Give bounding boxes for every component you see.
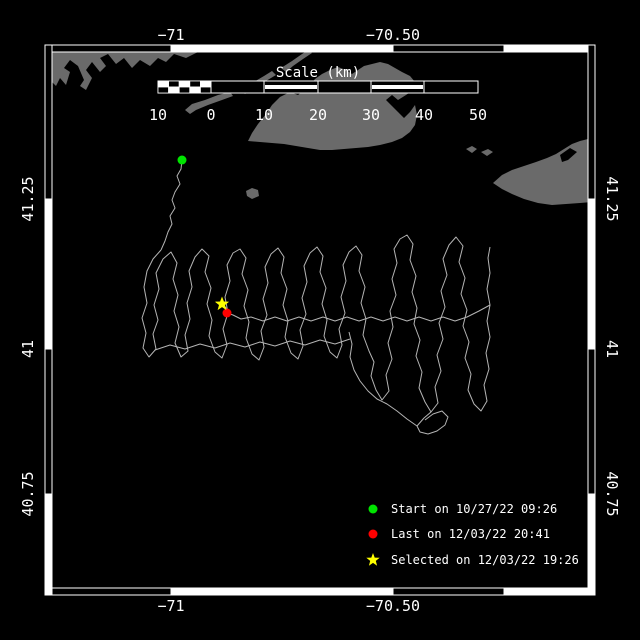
axis-label-right: 41: [603, 340, 621, 358]
scalebar-checker-cell: [179, 81, 190, 87]
axis-label-right: 40.75: [603, 471, 621, 516]
scalebar-checker-cell: [190, 87, 201, 93]
axis-label-right: 41.25: [603, 176, 621, 221]
scalebar-checker-cell: [158, 81, 169, 87]
scalebar-checker-cell: [169, 81, 180, 87]
scalebar-stripe: [372, 85, 423, 89]
scalebar-checker-cell: [200, 81, 211, 87]
scalebar-segment: [318, 81, 371, 93]
scalebar-title: Scale (km): [276, 65, 360, 81]
frame-segment: [588, 494, 595, 595]
frame-segment: [45, 45, 171, 52]
frame-segment: [504, 45, 595, 52]
scalebar-tick-label: 10: [255, 106, 273, 124]
frame-segment: [171, 45, 393, 52]
frame-segment: [45, 45, 52, 199]
axis-label-top: −71: [157, 26, 184, 44]
land-tuckernuck: [481, 149, 493, 156]
frame-segment: [393, 45, 504, 52]
scalebar-tick-label: 10: [149, 106, 167, 124]
scalebar-checker-cell: [158, 87, 169, 93]
legend-label: Start on 10/27/22 09:26: [391, 502, 557, 516]
map-window: −71−70.50−71−70.5041.254140.7541.254140.…: [0, 0, 640, 640]
track-polyline: [417, 411, 448, 434]
scalebar-tick-label: 0: [206, 106, 215, 124]
land-no-mans-land: [246, 188, 259, 199]
map-canvas[interactable]: −71−70.50−71−70.5041.254140.7541.254140.…: [0, 0, 640, 640]
scalebar-checker-cell: [200, 87, 211, 93]
scalebar-checker-cell: [190, 81, 201, 87]
land-muskeget: [466, 146, 477, 153]
frame-segment: [45, 349, 52, 494]
frame-segment: [45, 494, 52, 595]
last-marker: [223, 309, 232, 318]
frame-segment: [588, 45, 595, 199]
frame-segment: [45, 588, 171, 595]
frame-segment: [588, 349, 595, 494]
scalebar-segment: [211, 81, 264, 93]
track-polyline: [155, 339, 350, 350]
axis-label-bottom: −71: [157, 597, 184, 615]
scalebar-segment: [424, 81, 478, 93]
land-nantucket: [493, 139, 592, 205]
legend-last-marker-icon: [369, 530, 378, 539]
track-polyline: [161, 160, 182, 250]
scalebar-tick-label: 50: [469, 106, 487, 124]
legend-label: Last on 12/03/22 20:41: [391, 527, 550, 541]
scalebar-tick-label: 30: [362, 106, 380, 124]
scalebar-tick-label: 40: [415, 106, 433, 124]
scalebar-checker-cell: [169, 87, 180, 93]
axis-label-left: 41.25: [19, 176, 37, 221]
axis-label-bottom: −70.50: [366, 597, 420, 615]
frame-segment: [45, 199, 52, 349]
scalebar-stripe: [265, 85, 317, 89]
frame-segment: [393, 588, 504, 595]
start-marker: [178, 156, 187, 165]
frame-segment: [504, 588, 595, 595]
scalebar-tick-label: 20: [309, 106, 327, 124]
legend-label: Selected on 12/03/22 19:26: [391, 553, 579, 567]
axis-label-left: 40.75: [19, 471, 37, 516]
scalebar-checker-cell: [179, 87, 190, 93]
legend: Start on 10/27/22 09:26Last on 12/03/22 …: [366, 502, 579, 567]
track-polyline: [142, 235, 490, 412]
legend-start-marker-icon: [369, 505, 378, 514]
frame-segment: [588, 199, 595, 349]
axis-label-left: 41: [19, 340, 37, 358]
frame-segment: [171, 588, 393, 595]
track-layer: [142, 160, 490, 434]
axis-label-top: −70.50: [366, 26, 420, 44]
legend-selected-star-icon: [366, 553, 379, 566]
track-polyline: [349, 332, 417, 426]
markers-layer: [178, 156, 232, 318]
